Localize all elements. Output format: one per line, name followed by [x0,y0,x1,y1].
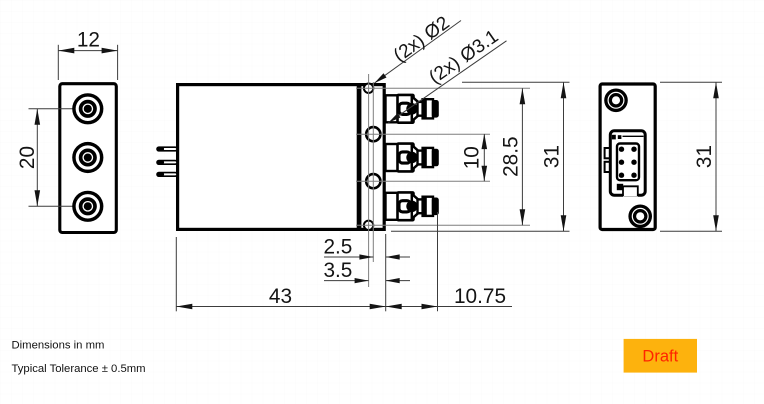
svg-text:31: 31 [540,145,563,168]
svg-text:43: 43 [269,285,292,308]
svg-text:2.5: 2.5 [323,235,352,258]
svg-text:10: 10 [461,146,484,169]
svg-text:Typical Tolerance ± 0.5mm: Typical Tolerance ± 0.5mm [12,363,146,375]
svg-text:10.75: 10.75 [454,285,506,308]
svg-text:20: 20 [16,146,39,169]
svg-text:3.5: 3.5 [323,259,352,282]
svg-text:Dimensions in mm: Dimensions in mm [12,339,105,351]
svg-text:31: 31 [693,145,716,168]
svg-text:28.5: 28.5 [499,136,522,176]
svg-text:Draft: Draft [642,348,678,366]
svg-text:12: 12 [77,28,100,51]
